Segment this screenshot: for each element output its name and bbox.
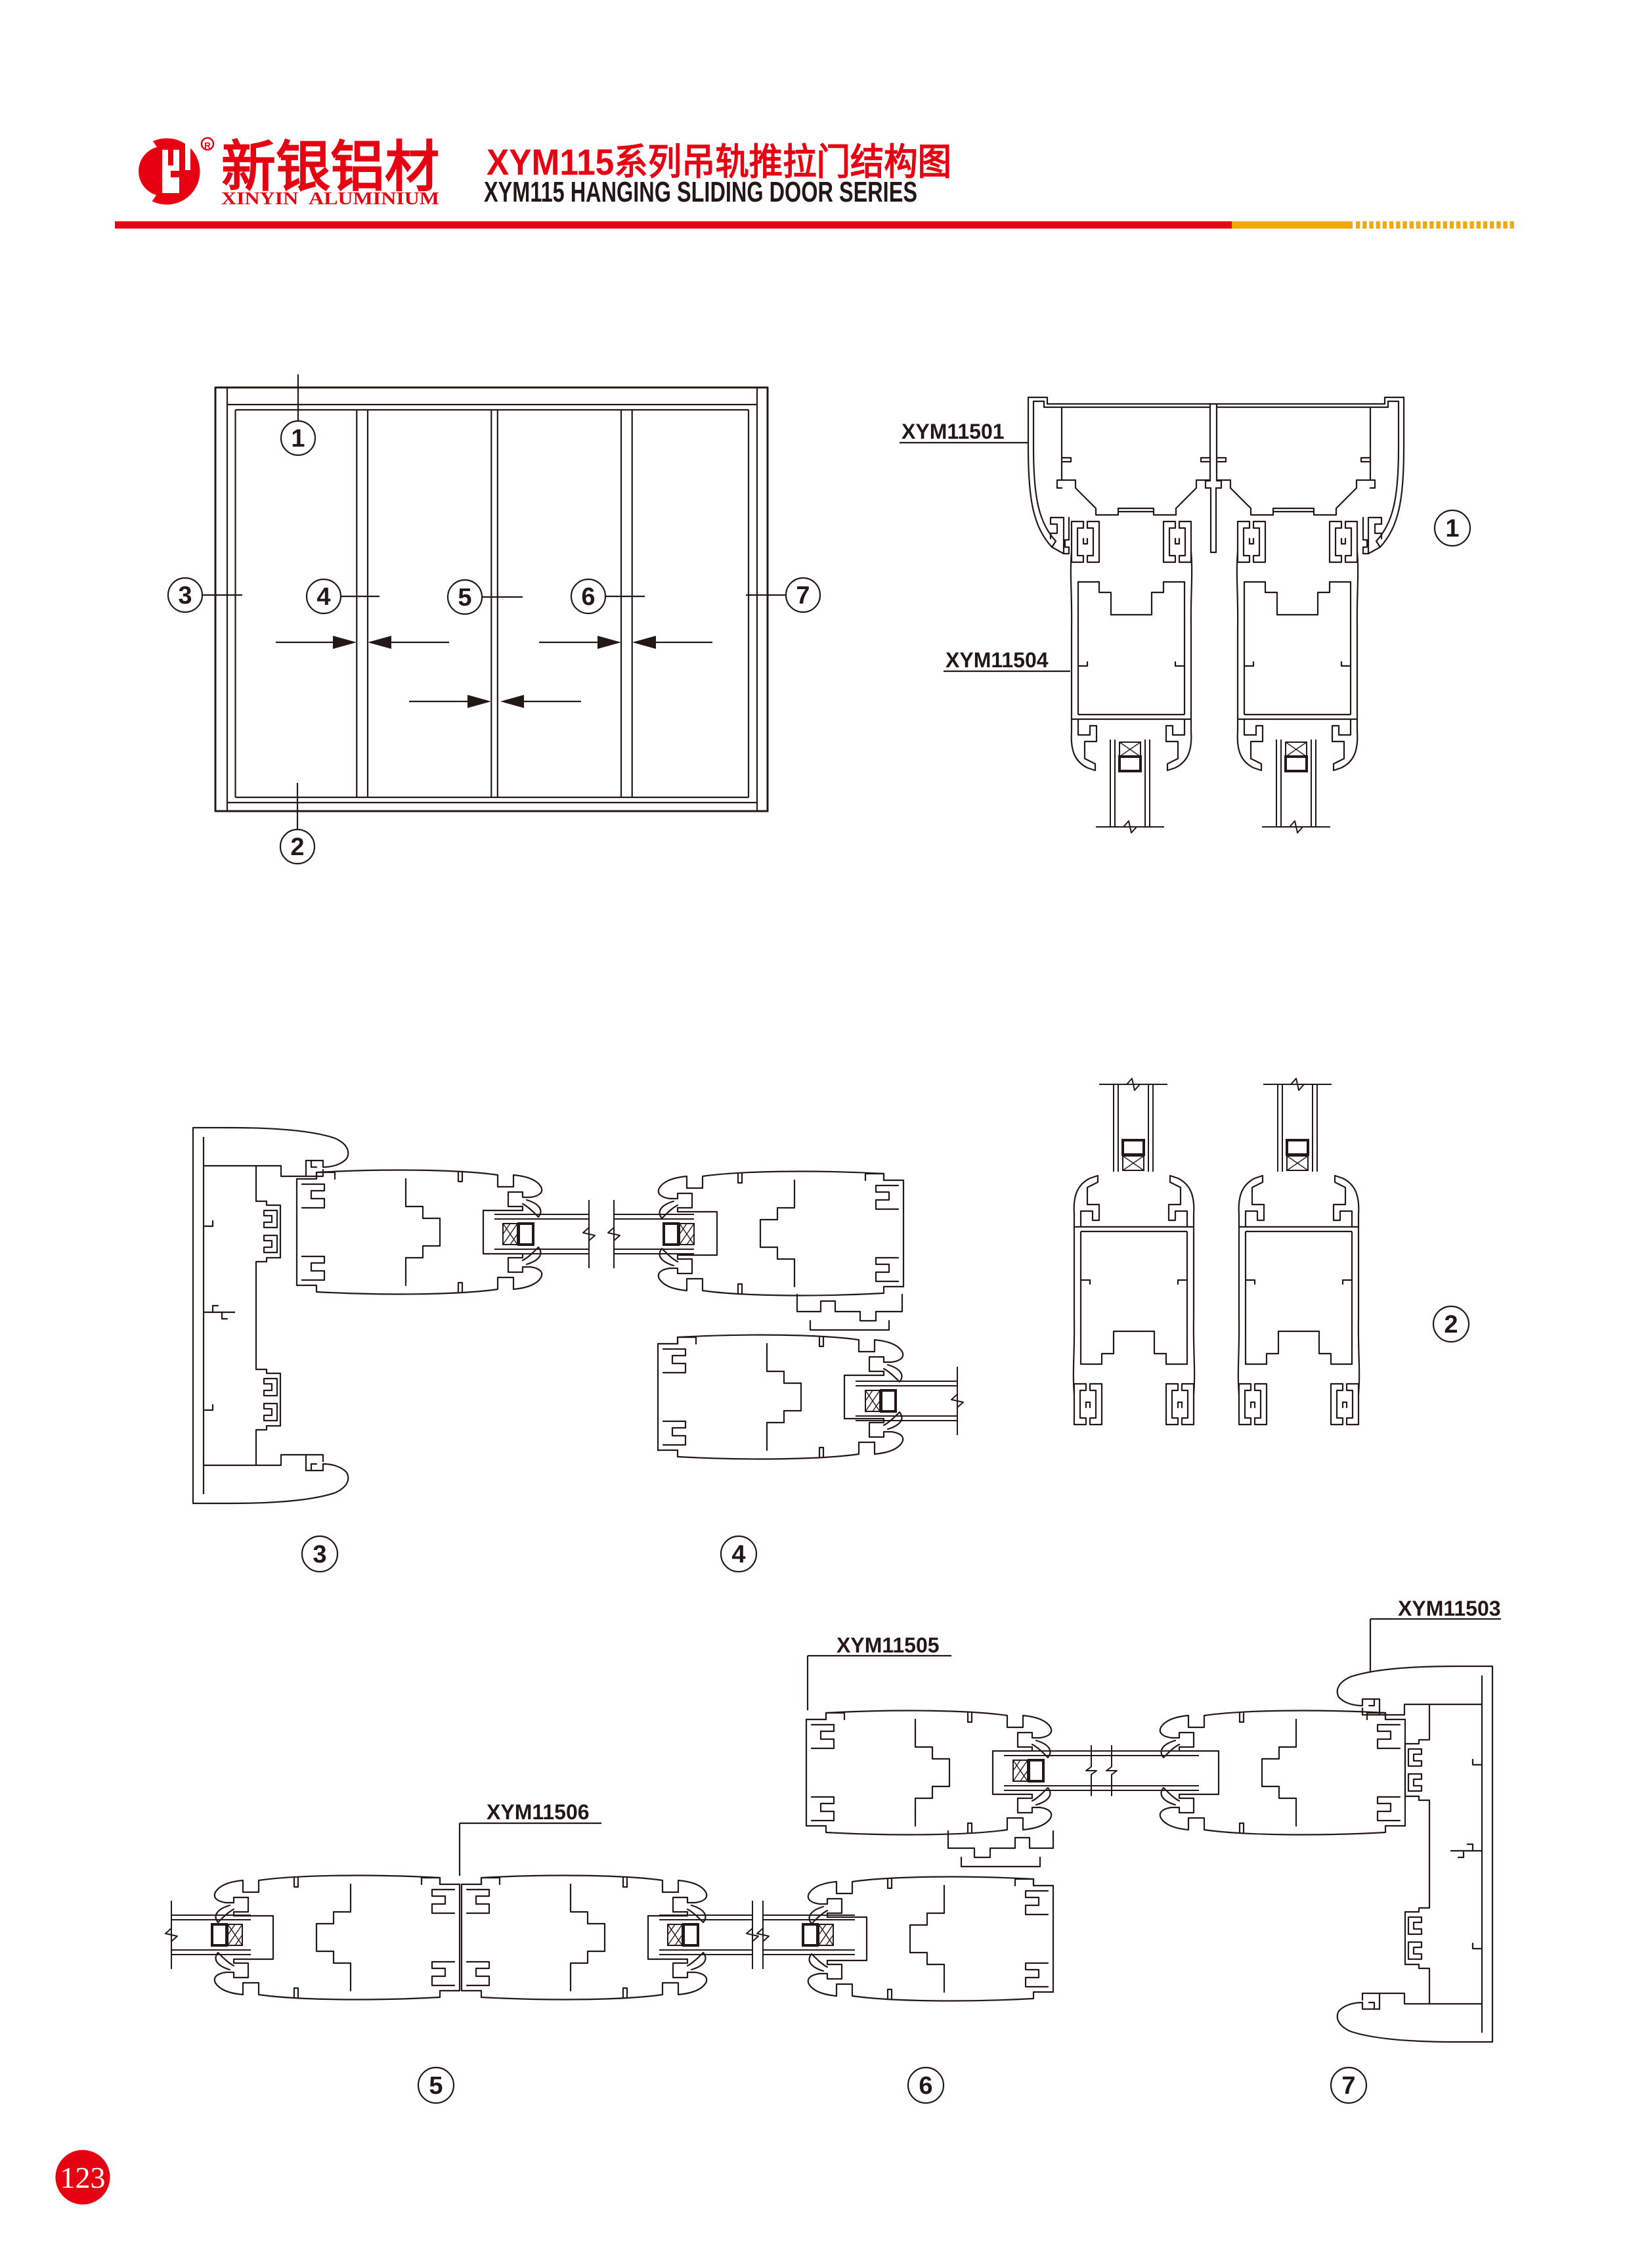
svg-text:4: 4 (316, 583, 330, 611)
svg-text:2: 2 (290, 833, 304, 861)
svg-text:XYM11501: XYM11501 (902, 420, 1005, 443)
svg-text:5: 5 (429, 2072, 443, 2100)
svg-text:5: 5 (458, 584, 471, 611)
svg-text:6: 6 (919, 2072, 932, 2100)
svg-text:4: 4 (731, 1541, 745, 1568)
svg-text:XINYIN ALUMINIUM: XINYIN ALUMINIUM (221, 188, 439, 208)
svg-text:3: 3 (178, 582, 192, 609)
svg-text:1: 1 (291, 425, 305, 453)
svg-text:XYM115 HANGING SLIDING DOOR SE: XYM115 HANGING SLIDING DOOR SERIES (484, 176, 917, 208)
svg-text:XYM11506: XYM11506 (487, 1800, 590, 1824)
svg-text:7: 7 (796, 582, 810, 609)
svg-text:6: 6 (581, 583, 595, 611)
svg-text:3: 3 (313, 1541, 326, 1568)
svg-text:123: 123 (60, 2161, 106, 2194)
svg-text:7: 7 (1341, 2072, 1355, 2100)
svg-text:1: 1 (1445, 515, 1459, 542)
svg-text:R: R (204, 141, 211, 150)
svg-text:XYM11504: XYM11504 (946, 648, 1049, 672)
svg-text:XYM11505: XYM11505 (837, 1633, 940, 1657)
svg-text:2: 2 (1444, 1311, 1458, 1339)
svg-text:XYM11503: XYM11503 (1398, 1597, 1501, 1620)
